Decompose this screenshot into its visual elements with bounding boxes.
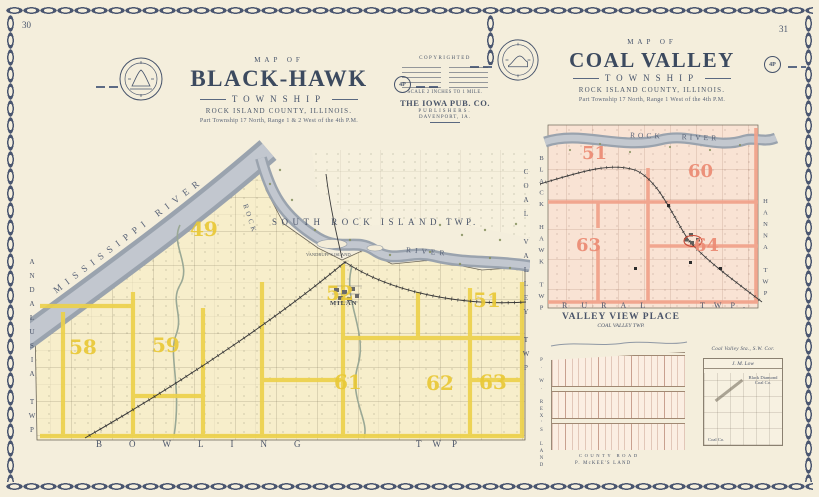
station-plat-box: J. M. Low Black Diamond Coal Co. Coal Co… xyxy=(703,358,783,446)
publisher-city: DAVENPORT, IA. xyxy=(392,115,498,120)
valley-view-place-inset: VALLEY VIEW PLACE COAL VALLEY TWP. COUNT… xyxy=(545,312,697,474)
valley-view-subtitle: COAL VALLEY TWP. xyxy=(545,323,697,329)
publisher-name: THE IOWA PUB. CO. xyxy=(392,98,498,108)
coalvalley-title: COAL VALLEY xyxy=(569,47,735,73)
rock-river-label-2: RIVER xyxy=(406,245,449,258)
blackhawk-title-stack: MAP OF BLACK-HAWK TOWNSHIP ROCK ISLAND C… xyxy=(170,56,388,125)
blackhawk-township: TOWNSHIP xyxy=(232,94,326,105)
neighbor-label-rural-twp: TWP. xyxy=(700,301,754,310)
coalvalley-map-paper xyxy=(540,110,790,320)
page-number-right: 31 xyxy=(779,24,788,34)
rule-left xyxy=(573,78,599,79)
neighbor-label-rural: RURAL xyxy=(562,301,659,310)
blackhawk-medallion-icon xyxy=(118,56,164,102)
island-shape xyxy=(367,245,383,251)
section-number: 49 xyxy=(190,217,218,241)
legend-lines xyxy=(402,64,488,88)
section-number: 51 xyxy=(582,143,607,164)
coalvalley-meridian-stamp: 4P xyxy=(764,56,781,73)
section-number: 63 xyxy=(576,235,601,256)
vandruffs-island-shape xyxy=(317,240,347,249)
section-number: 58 xyxy=(69,335,97,359)
coalvalley-range: Part Township 17 North, Range 1 West of … xyxy=(579,97,725,105)
neighbor-label-south-rock-island: SOUTH ROCK ISLAND xyxy=(272,217,441,227)
section-number: 61 xyxy=(334,370,362,394)
station-label-coal: Coal Co. xyxy=(708,437,724,442)
publisher-block: COPYRIGHTED SCALE 2 INCHES TO 1 MILE. TH… xyxy=(392,56,498,123)
blackhawk-range: Part Township 17 North, Range 1 & 2 West… xyxy=(200,118,358,126)
county-road-label: COUNTY ROAD xyxy=(579,453,640,458)
coalvalley-flourish-right xyxy=(788,66,806,68)
section-number: 63 xyxy=(479,370,507,394)
valley-view-plat xyxy=(551,352,687,452)
border-right xyxy=(804,15,813,482)
lot-row xyxy=(552,423,686,451)
section-number: 60 xyxy=(688,161,713,182)
station-caption: Coal Valley Sta., S.W. Cor. xyxy=(697,346,789,352)
section-number: 52 xyxy=(326,281,354,305)
rule-right xyxy=(705,78,731,79)
legend-column xyxy=(402,64,441,88)
coalvalley-map-of: MAP OF xyxy=(627,38,677,47)
coalvalley-township: TOWNSHIP xyxy=(605,73,699,84)
section-number: 64 xyxy=(694,235,719,256)
coalvalley-title-stack: MAP OF COAL VALLEY TOWNSHIP ROCK ISLAND … xyxy=(546,38,758,105)
blackhawk-township-row: TOWNSHIP xyxy=(200,94,358,105)
blackhawk-flourish-left xyxy=(96,86,120,88)
side-owner-label: P. W. REX'S LAND xyxy=(539,358,544,450)
coalvalley-title-block: MAP OF COAL VALLEY TOWNSHIP ROCK ISLAND … xyxy=(496,38,796,105)
blackhawk-title: BLACK-HAWK xyxy=(190,65,367,94)
neighbor-label-bowling: BOWLING xyxy=(96,439,328,449)
section-number: 62 xyxy=(426,371,454,395)
publisher-flourish xyxy=(430,122,460,123)
station-inset: Coal Valley Sta., S.W. Cor. J. M. Low Bl… xyxy=(697,346,789,458)
blackhawk-county: ROCK ISLAND COUNTY, ILLINOIS. xyxy=(206,107,352,116)
station-owner-label: J. M. Low xyxy=(704,359,782,369)
page-number-left: 30 xyxy=(22,20,31,30)
coalvalley-medallion-icon xyxy=(496,38,540,82)
section-number: 59 xyxy=(152,333,180,357)
legend-column xyxy=(449,64,488,88)
coalvalley-township-row: TOWNSHIP xyxy=(573,73,731,84)
section-number: 51 xyxy=(473,288,501,312)
scale-note: SCALE 2 INCHES TO 1 MILE. xyxy=(392,90,498,95)
blackhawk-map-of: MAP OF xyxy=(254,56,304,65)
blackhawk-title-block: MAP OF BLACK-HAWK TOWNSHIP ROCK ISLAND C… xyxy=(118,56,428,125)
station-label-coal-co: Black Diamond Coal Co. xyxy=(747,375,779,386)
border-left xyxy=(6,15,15,482)
adjacent-owner-label: P. McKEE'S LAND xyxy=(575,461,631,466)
neighbor-label-andalusia: ANDALUSIA TWP xyxy=(28,258,36,448)
vandruffs-island-label: VANDRUFF'S ISLAND xyxy=(306,252,351,257)
lot-row xyxy=(552,355,686,387)
border-bottom xyxy=(6,482,813,491)
neighbor-label-coal-valley-twp: COAL VALLEY TWP xyxy=(522,168,530,433)
neighbor-label-bowling-twp: TWP xyxy=(416,439,468,449)
rule-right xyxy=(332,99,358,100)
copyright-label: COPYRIGHTED xyxy=(392,56,498,61)
valley-view-title: VALLEY VIEW PLACE xyxy=(545,312,697,322)
lot-row xyxy=(552,391,686,419)
valley-view-river-line xyxy=(549,338,689,350)
neighbor-label-hanna: HANNA TWP xyxy=(762,198,769,308)
rule-left xyxy=(200,99,226,100)
atlas-spread: { "page": {"left_number": "30", "right_n… xyxy=(0,0,819,497)
neighbor-label-south-rock-island-twp: TWP. xyxy=(446,217,478,227)
neighbor-label-black-hawk: BLACK HAWK TWP xyxy=(538,155,545,305)
border-top xyxy=(6,6,813,15)
coalvalley-county: ROCK ISLAND COUNTY, ILLINOIS. xyxy=(579,86,725,95)
publisher-role: PUBLISHERS. xyxy=(392,109,498,114)
